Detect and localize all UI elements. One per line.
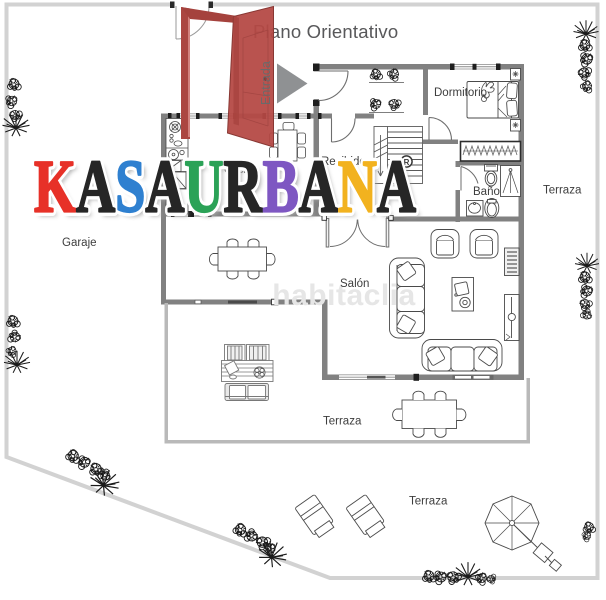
svg-text:Baño: Baño — [473, 186, 500, 198]
svg-text:Terraza: Terraza — [323, 416, 362, 428]
svg-text:Plano Orientativo: Plano Orientativo — [253, 21, 398, 42]
svg-text:Salón: Salón — [340, 278, 369, 290]
svg-text:Dormitorio: Dormitorio — [434, 87, 487, 99]
svg-text:Entrada: Entrada — [259, 61, 273, 105]
svg-text:KASAURBANA: KASAURBANA — [34, 146, 416, 229]
svg-text:Garaje: Garaje — [62, 237, 97, 249]
svg-text:Terraza: Terraza — [543, 185, 582, 197]
svg-text:Terraza: Terraza — [409, 496, 448, 508]
